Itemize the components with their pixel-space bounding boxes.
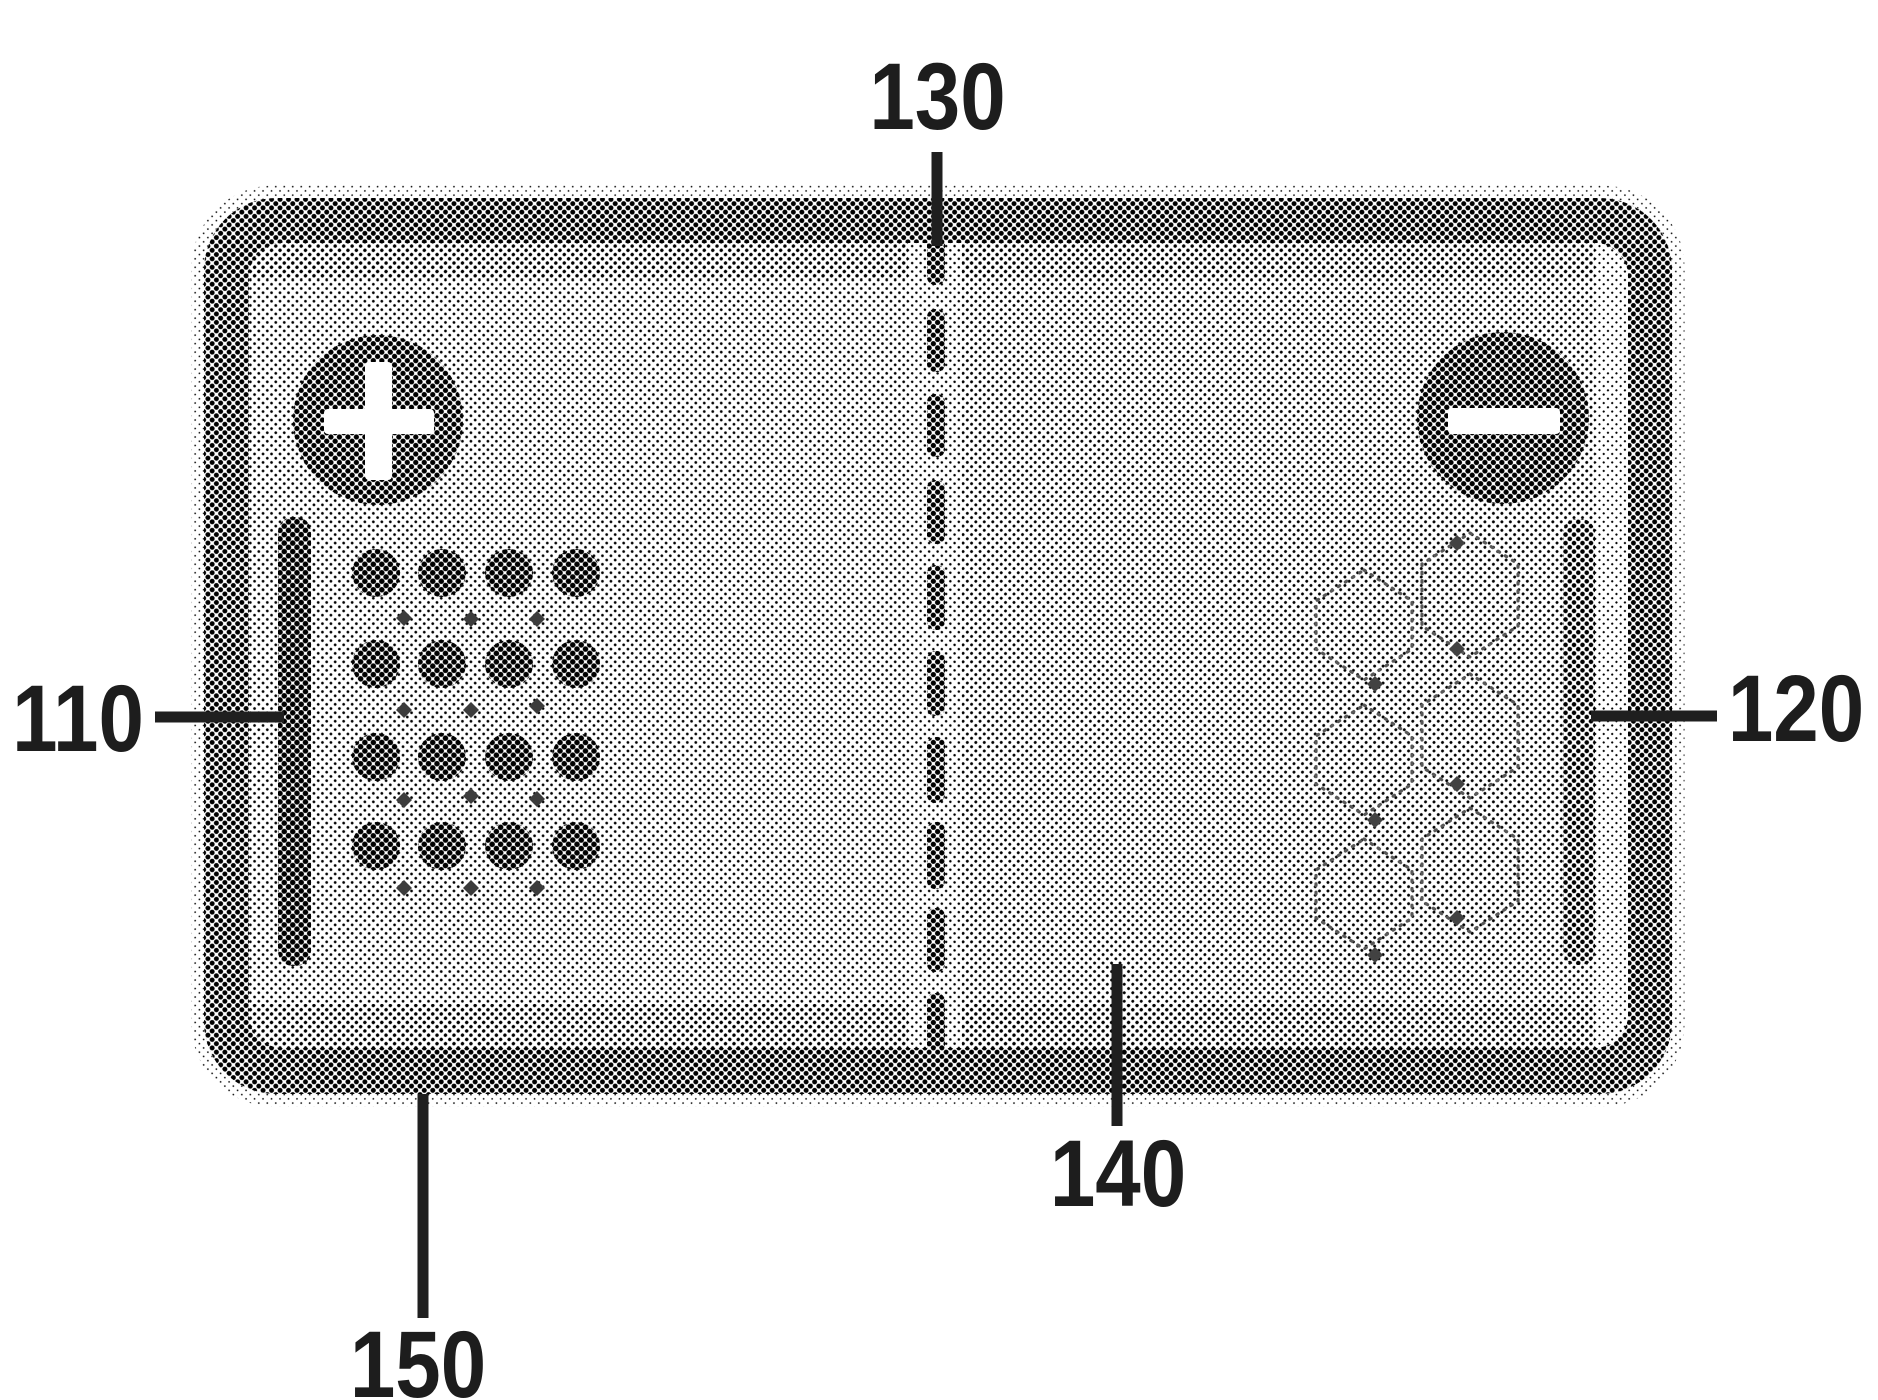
svg-text:130: 130 [869, 43, 1005, 149]
svg-text:120: 120 [1728, 655, 1864, 761]
svg-text:140: 140 [1050, 1120, 1186, 1226]
svg-text:110: 110 [12, 665, 144, 771]
svg-text:150: 150 [350, 1311, 486, 1400]
